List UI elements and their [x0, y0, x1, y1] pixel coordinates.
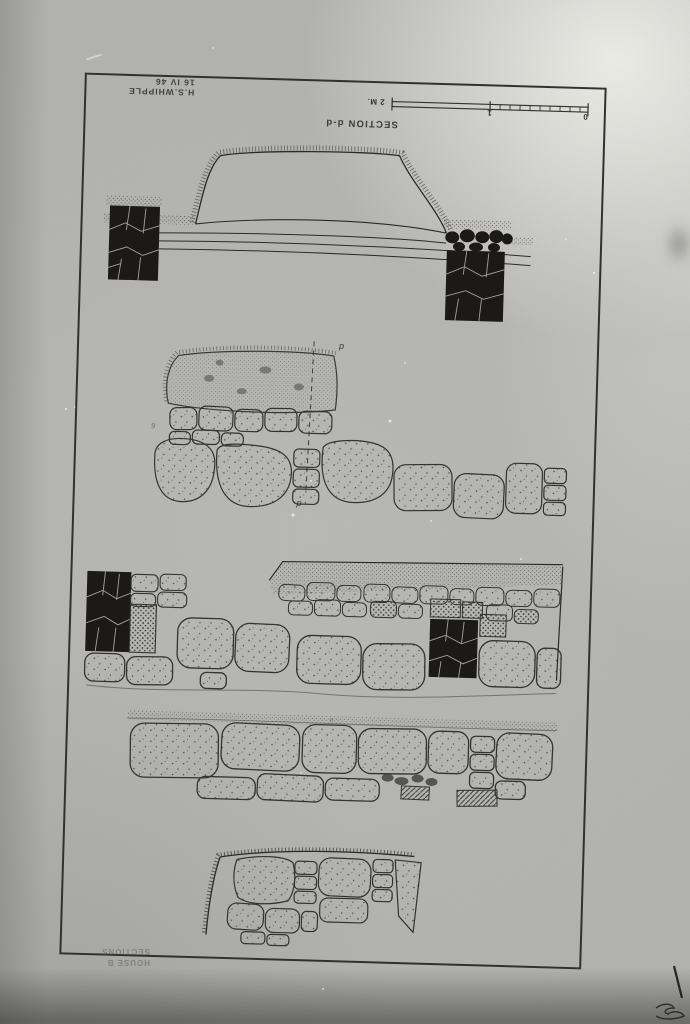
stratum-curve: [195, 217, 446, 234]
section-line-label-top: d: [338, 342, 344, 352]
slash-mark: [674, 966, 682, 998]
buried-course-drawing: d: [125, 704, 558, 821]
dust-specks: [0, 0, 2, 2]
caption-line1: HOUSE B: [40, 957, 150, 968]
scale-label-2m: 2 M.: [367, 97, 385, 107]
long-wall-elevation-drawing: [80, 545, 569, 709]
earthen-cap: [164, 345, 338, 415]
section-title: SECTION d-d: [311, 116, 411, 130]
pencil-number: 6: [151, 421, 156, 430]
plate-border: H.S.WHIPPLE 16 IV 46 2 M. 1 0 SECTION d-…: [59, 73, 606, 970]
caption-line2: SECTIONS: [40, 946, 150, 957]
plate-caption: HOUSE B SECTIONS: [40, 946, 150, 968]
surveyor-signature: H.S.WHIPPLE 16 IV 46: [108, 75, 195, 97]
wall-elevation-cap-drawing: d d 6: [143, 325, 573, 527]
rubble-bits: [381, 774, 437, 787]
scale-label-1: 1: [487, 108, 492, 117]
right-pier: [441, 219, 513, 322]
mound-section-drawing: [101, 133, 536, 335]
film-scratch: [86, 54, 102, 61]
left-black-mass: [85, 571, 131, 652]
hatched-stone-2: [401, 786, 430, 800]
scribble-mark: [656, 1004, 684, 1019]
left-pier: [104, 195, 162, 281]
photograph-of-plate: H.S.WHIPPLE 16 IV 46 2 M. 1 0 SECTION d-…: [0, 0, 690, 1024]
mound-stipple-edge: [192, 144, 453, 229]
fragment-stones: [226, 855, 421, 950]
scale-label-0: 0: [583, 112, 588, 121]
film-smudge: [664, 222, 690, 266]
left-small-stones: [130, 573, 187, 608]
wall-fragment-drawing: [201, 834, 424, 955]
speckled-stone: [129, 604, 156, 653]
hatched-stone-1: [457, 790, 497, 806]
masonry-stones: [153, 405, 568, 522]
corner-pen-marks: [652, 962, 690, 1022]
